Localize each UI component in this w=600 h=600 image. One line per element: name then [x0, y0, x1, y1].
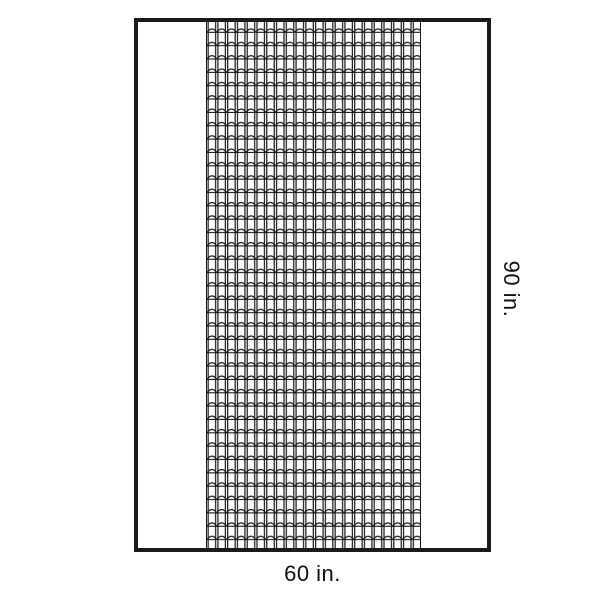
scallop-grid-pattern	[207, 22, 421, 548]
drape-outline	[134, 18, 491, 552]
height-dimension-label: 90 in.	[498, 261, 524, 318]
width-dimension-label: 60 in.	[134, 561, 491, 587]
diagram-canvas: 60 in. 90 in.	[0, 0, 600, 600]
reinforcement-band	[206, 22, 421, 548]
